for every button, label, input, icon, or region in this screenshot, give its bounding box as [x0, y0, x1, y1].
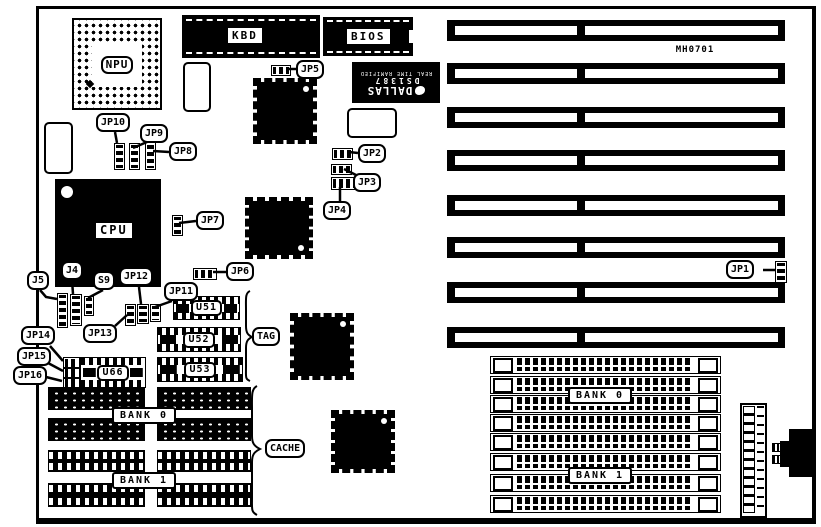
callout-jp16: JP16	[13, 366, 47, 385]
pin1-dot-icon	[340, 321, 346, 327]
dallas-brand-row: DALLAS	[367, 85, 426, 96]
isa-slot-1	[447, 20, 785, 41]
callout-j4: J4	[61, 261, 83, 280]
callout-jp8: JP8	[169, 142, 197, 161]
jumper-jp2	[332, 148, 353, 160]
jumper-jp9	[129, 143, 140, 170]
pin1-marker-icon	[86, 80, 94, 88]
u52-label: U52	[183, 332, 214, 348]
kbd-pins-bottom	[186, 52, 316, 54]
dallas-subtitle: REAL TIME RAMIFIED	[360, 69, 432, 76]
u66-chip: U66	[80, 357, 146, 388]
u53-label: U53	[184, 362, 215, 378]
bios-pins-top	[327, 20, 409, 22]
callout-jp3: JP3	[353, 173, 381, 192]
callout-j5: J5	[27, 271, 49, 290]
din-pin-icon	[772, 455, 781, 464]
kbd-label: KBD	[228, 28, 262, 43]
npu-socket-center: NPU	[92, 42, 142, 87]
callout-jp2: JP2	[358, 144, 386, 163]
jumper-jp5	[271, 65, 291, 76]
u51-label: U51	[191, 300, 222, 316]
pin1-dot-icon	[303, 86, 309, 92]
keyboard-din-connector	[789, 429, 816, 477]
jumper-jp6	[193, 268, 217, 280]
bios-chip: BIOS	[323, 17, 413, 56]
simm-socket-8	[490, 495, 721, 513]
isa-slot-8	[447, 327, 785, 348]
kbd-pins-top	[186, 19, 316, 21]
qfp-chip	[245, 197, 313, 259]
dallas-rtc-chip: DALLAS DS1387 REAL TIME RAMIFIED	[352, 62, 440, 103]
dallas-brand: DALLAS	[367, 85, 413, 96]
simm-socket-5	[490, 433, 721, 451]
bios-notch	[409, 30, 414, 43]
kbd-chip: KBD	[182, 15, 320, 58]
callout-jp11: JP11	[164, 282, 198, 301]
u66-label: U66	[97, 365, 128, 381]
isa-slot-2	[447, 63, 785, 84]
bios-pins-bottom	[327, 51, 409, 53]
power-connector	[740, 403, 767, 518]
jumper-jp13	[125, 304, 136, 326]
isa-slot-7	[447, 282, 785, 303]
cache-bank1-socket	[157, 450, 251, 472]
simm-socket-4	[490, 414, 721, 432]
callout-jp4: JP4	[323, 201, 351, 220]
u52-chip: U52	[157, 327, 241, 352]
isa-slot-4	[447, 150, 785, 171]
npu-label: NPU	[101, 56, 134, 74]
u53-chip: U53	[157, 357, 243, 382]
isa-slot-5	[447, 195, 785, 216]
bios-label: BIOS	[347, 29, 390, 44]
simm-bank0-label: BANK 0	[568, 387, 632, 404]
simm-bank1-label: BANK 1	[568, 467, 632, 484]
cpu-pin1-dot-icon	[61, 186, 73, 198]
isa-slot-6	[447, 237, 785, 258]
callout-jp15: JP15	[17, 347, 51, 366]
cache-bank1-socket	[48, 450, 145, 472]
callout-jp14: JP14	[21, 326, 55, 345]
jumper-s9	[84, 296, 94, 316]
jumper-j4	[70, 294, 82, 326]
callout-jp6: JP6	[226, 262, 254, 281]
simm-socket-1	[490, 356, 721, 374]
keyboard-din-connector-step	[780, 441, 789, 467]
callout-jp10: JP10	[96, 113, 130, 132]
jumper-jp7	[172, 215, 183, 236]
qfp-chip	[290, 313, 354, 380]
din-pin-icon	[772, 443, 781, 452]
jumper-j5	[57, 293, 68, 328]
jumper-jp3	[331, 164, 352, 175]
callout-jp1: JP1	[726, 260, 754, 279]
capacitor	[44, 122, 73, 174]
cache-bank1-label: BANK 1	[112, 472, 176, 489]
cache-bank0-label: BANK 0	[112, 407, 176, 424]
dallas-logo-icon	[415, 86, 425, 95]
jumper-jp1	[775, 261, 787, 283]
callout-jp12: JP12	[119, 267, 153, 286]
jumper-jp11	[150, 304, 161, 322]
pin1-dot-icon	[381, 418, 387, 424]
cache-label: CACHE	[265, 439, 305, 458]
board-part-number: MH0701	[640, 45, 750, 55]
motherboard-diagram: NPU KBD BIOS DALLAS DS1387 REAL TIME RAM…	[0, 0, 821, 527]
tag-label: TAG	[252, 327, 280, 346]
callout-jp7: JP7	[196, 211, 224, 230]
isa-slot-3	[447, 107, 785, 128]
jumper-jp12	[137, 304, 149, 324]
callout-s9: S9	[93, 271, 115, 290]
dallas-part: DS1387	[373, 76, 420, 85]
callout-jp9: JP9	[140, 124, 168, 143]
jumper-jp10	[114, 143, 125, 170]
cpu-label: CPU	[96, 223, 132, 238]
pin1-dot-icon	[298, 245, 304, 251]
crystal	[347, 108, 397, 138]
qfp-chip	[253, 78, 317, 144]
callout-jp13: JP13	[83, 324, 117, 343]
npu-socket: NPU	[72, 18, 162, 110]
qfp-chip	[331, 410, 395, 473]
capacitor	[183, 62, 211, 112]
callout-jp5: JP5	[296, 60, 324, 79]
